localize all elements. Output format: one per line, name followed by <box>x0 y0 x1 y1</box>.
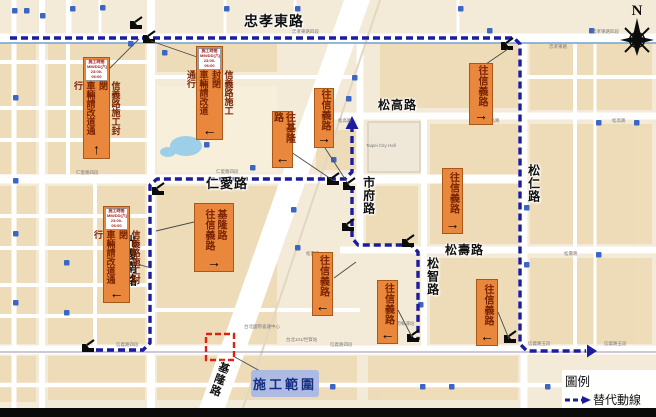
metro-marker <box>13 231 19 237</box>
metro-marker <box>224 6 230 12</box>
map-label: 仁愛路四段 <box>76 170 99 176</box>
metro-marker <box>596 252 602 258</box>
banner-arrow-right: → <box>207 255 221 269</box>
road-label: 松仁路 <box>527 164 540 203</box>
metro-marker <box>13 95 19 101</box>
construction-range-label: 施工範圍 <box>251 370 319 397</box>
map-label: 信義路四段 <box>116 342 139 348</box>
banner-arrow-right: → <box>317 131 331 145</box>
banner-arrow-up: ↑ <box>93 142 100 156</box>
road-label: 松壽路 <box>445 244 484 257</box>
metro-marker <box>12 8 18 14</box>
legend: 圖例 替代動線 <box>562 370 656 409</box>
metro-marker <box>596 120 602 126</box>
map-label: 台北國際會議中心 <box>244 324 280 330</box>
detour-banner: 往信義路← <box>476 279 498 346</box>
metro-marker <box>13 178 19 184</box>
metro-marker <box>64 310 70 316</box>
map-label: 台北101/世貿站 <box>286 337 317 343</box>
banner-text: 信義路施工封閉 車輛請改道通行 <box>185 70 235 123</box>
alt-route-legend-icon <box>565 395 591 405</box>
banner-arrow-left: ← <box>381 327 395 341</box>
legend-title: 圖例 <box>565 371 653 390</box>
banner-arrow-left: ← <box>110 286 124 300</box>
banner-text: 往信義路 <box>481 280 493 329</box>
map-label: Taipei City Hall <box>366 143 396 148</box>
alt-route-legend-label: 替代動線 <box>593 391 641 408</box>
banner-text: 信義路施工封閉 車輛請改道通行 <box>92 230 142 286</box>
map-label: 信義路五段 <box>528 341 551 347</box>
banner-text: 往信義路 <box>382 281 394 327</box>
detour-banner: 往信義路→ <box>314 88 334 148</box>
banner-text: 基隆路 往信義路 <box>202 204 226 255</box>
map-label: 松壽路 <box>564 251 578 257</box>
road-label: 市府路 <box>362 176 375 215</box>
banner-arrow-left: ← <box>480 329 494 343</box>
detour-banner: 往信義路← <box>312 252 333 316</box>
metro-marker <box>330 384 336 390</box>
banner-schedule-header: 施工時間MM/DD(六)23:00-06:00 <box>198 48 221 70</box>
banner-arrow-right: → <box>474 108 488 122</box>
metro-marker <box>487 28 493 34</box>
metro-marker <box>524 262 530 268</box>
metro-marker <box>545 384 551 390</box>
metro-marker <box>420 384 426 390</box>
closure-banner: 施工時間MM/DD(六)23:00-06:00信義路施工封閉 車輛請改道通行← <box>103 206 130 303</box>
banner-text: 往基隆路 <box>271 112 295 151</box>
metro-marker <box>634 120 640 126</box>
map-label: 信義路四段 <box>330 342 353 348</box>
banner-schedule-header: 施工時間MM/DD(六)23:00-06:00 <box>85 59 108 81</box>
map-label: 仁愛路四段 <box>216 169 239 175</box>
metro-marker <box>449 384 455 390</box>
metro-marker <box>100 5 106 11</box>
banner-arrow-left: ← <box>316 299 330 313</box>
metro-marker <box>204 142 210 148</box>
metro-marker <box>295 245 301 251</box>
road-label: 松智路 <box>426 257 439 296</box>
metro-marker <box>346 96 352 102</box>
detour-banner: 往信義路← <box>377 280 398 344</box>
banner-schedule-header: 施工時間MM/DD(六)23:00-06:00 <box>105 208 128 230</box>
map-label: 忠孝東路四段 <box>592 29 619 35</box>
metro-marker <box>352 75 358 81</box>
map-label: 松高路 <box>612 118 626 124</box>
banner-text: 往信義路 <box>475 64 487 108</box>
detour-banner: 往基隆路← <box>272 111 293 168</box>
metro-marker <box>291 207 297 213</box>
metro-marker <box>162 50 168 56</box>
map-label: 信義路五段 <box>604 341 627 347</box>
banner-text: 往信義路 <box>447 169 459 217</box>
banner-arrow-right: → <box>446 217 460 231</box>
road-label: 仁愛路 <box>206 177 248 191</box>
banner-arrow-left: ← <box>203 123 217 137</box>
map-label: 忠孝東路四段 <box>292 29 319 35</box>
metro-marker <box>70 6 76 12</box>
metro-marker <box>524 205 530 211</box>
detour-banner: 基隆路 往信義路→ <box>194 203 234 272</box>
metro-marker <box>64 260 70 266</box>
detour-banner: 往信義路→ <box>469 63 493 125</box>
road-label: 松高路 <box>378 99 417 112</box>
bottom-letterbox-bar <box>0 408 656 417</box>
closure-banner: 施工時間MM/DD(六)23:00-06:00信義路施工封閉 車輛請改道通行↑ <box>83 57 110 159</box>
metro-marker <box>13 300 19 306</box>
banner-text: 信義路施工封閉 車輛請改道通行 <box>72 81 122 142</box>
detour-banner: 往信義路→ <box>442 168 463 234</box>
detour-map: N 施工範圍 圖例 替代動線 施工時間MM/DD(六)23:00-06:00信義… <box>0 0 656 417</box>
metro-marker <box>24 8 30 14</box>
north-label: N <box>632 3 643 19</box>
closure-banner: 施工時間MM/DD(六)23:00-06:00信義路施工封閉 車輛請改道通行← <box>196 46 223 140</box>
road-label: 忠孝東路 <box>244 14 304 29</box>
metro-marker <box>40 13 46 19</box>
banner-text: 往信義路 <box>317 253 329 299</box>
map-label: 松高路 <box>338 118 352 124</box>
metro-marker <box>295 6 301 12</box>
map-label: 忠孝東路 <box>549 44 567 50</box>
banner-arrow-left: ← <box>276 151 290 165</box>
metro-marker <box>250 165 256 171</box>
banner-text: 往信義路 <box>318 89 330 131</box>
metro-marker <box>458 6 464 12</box>
